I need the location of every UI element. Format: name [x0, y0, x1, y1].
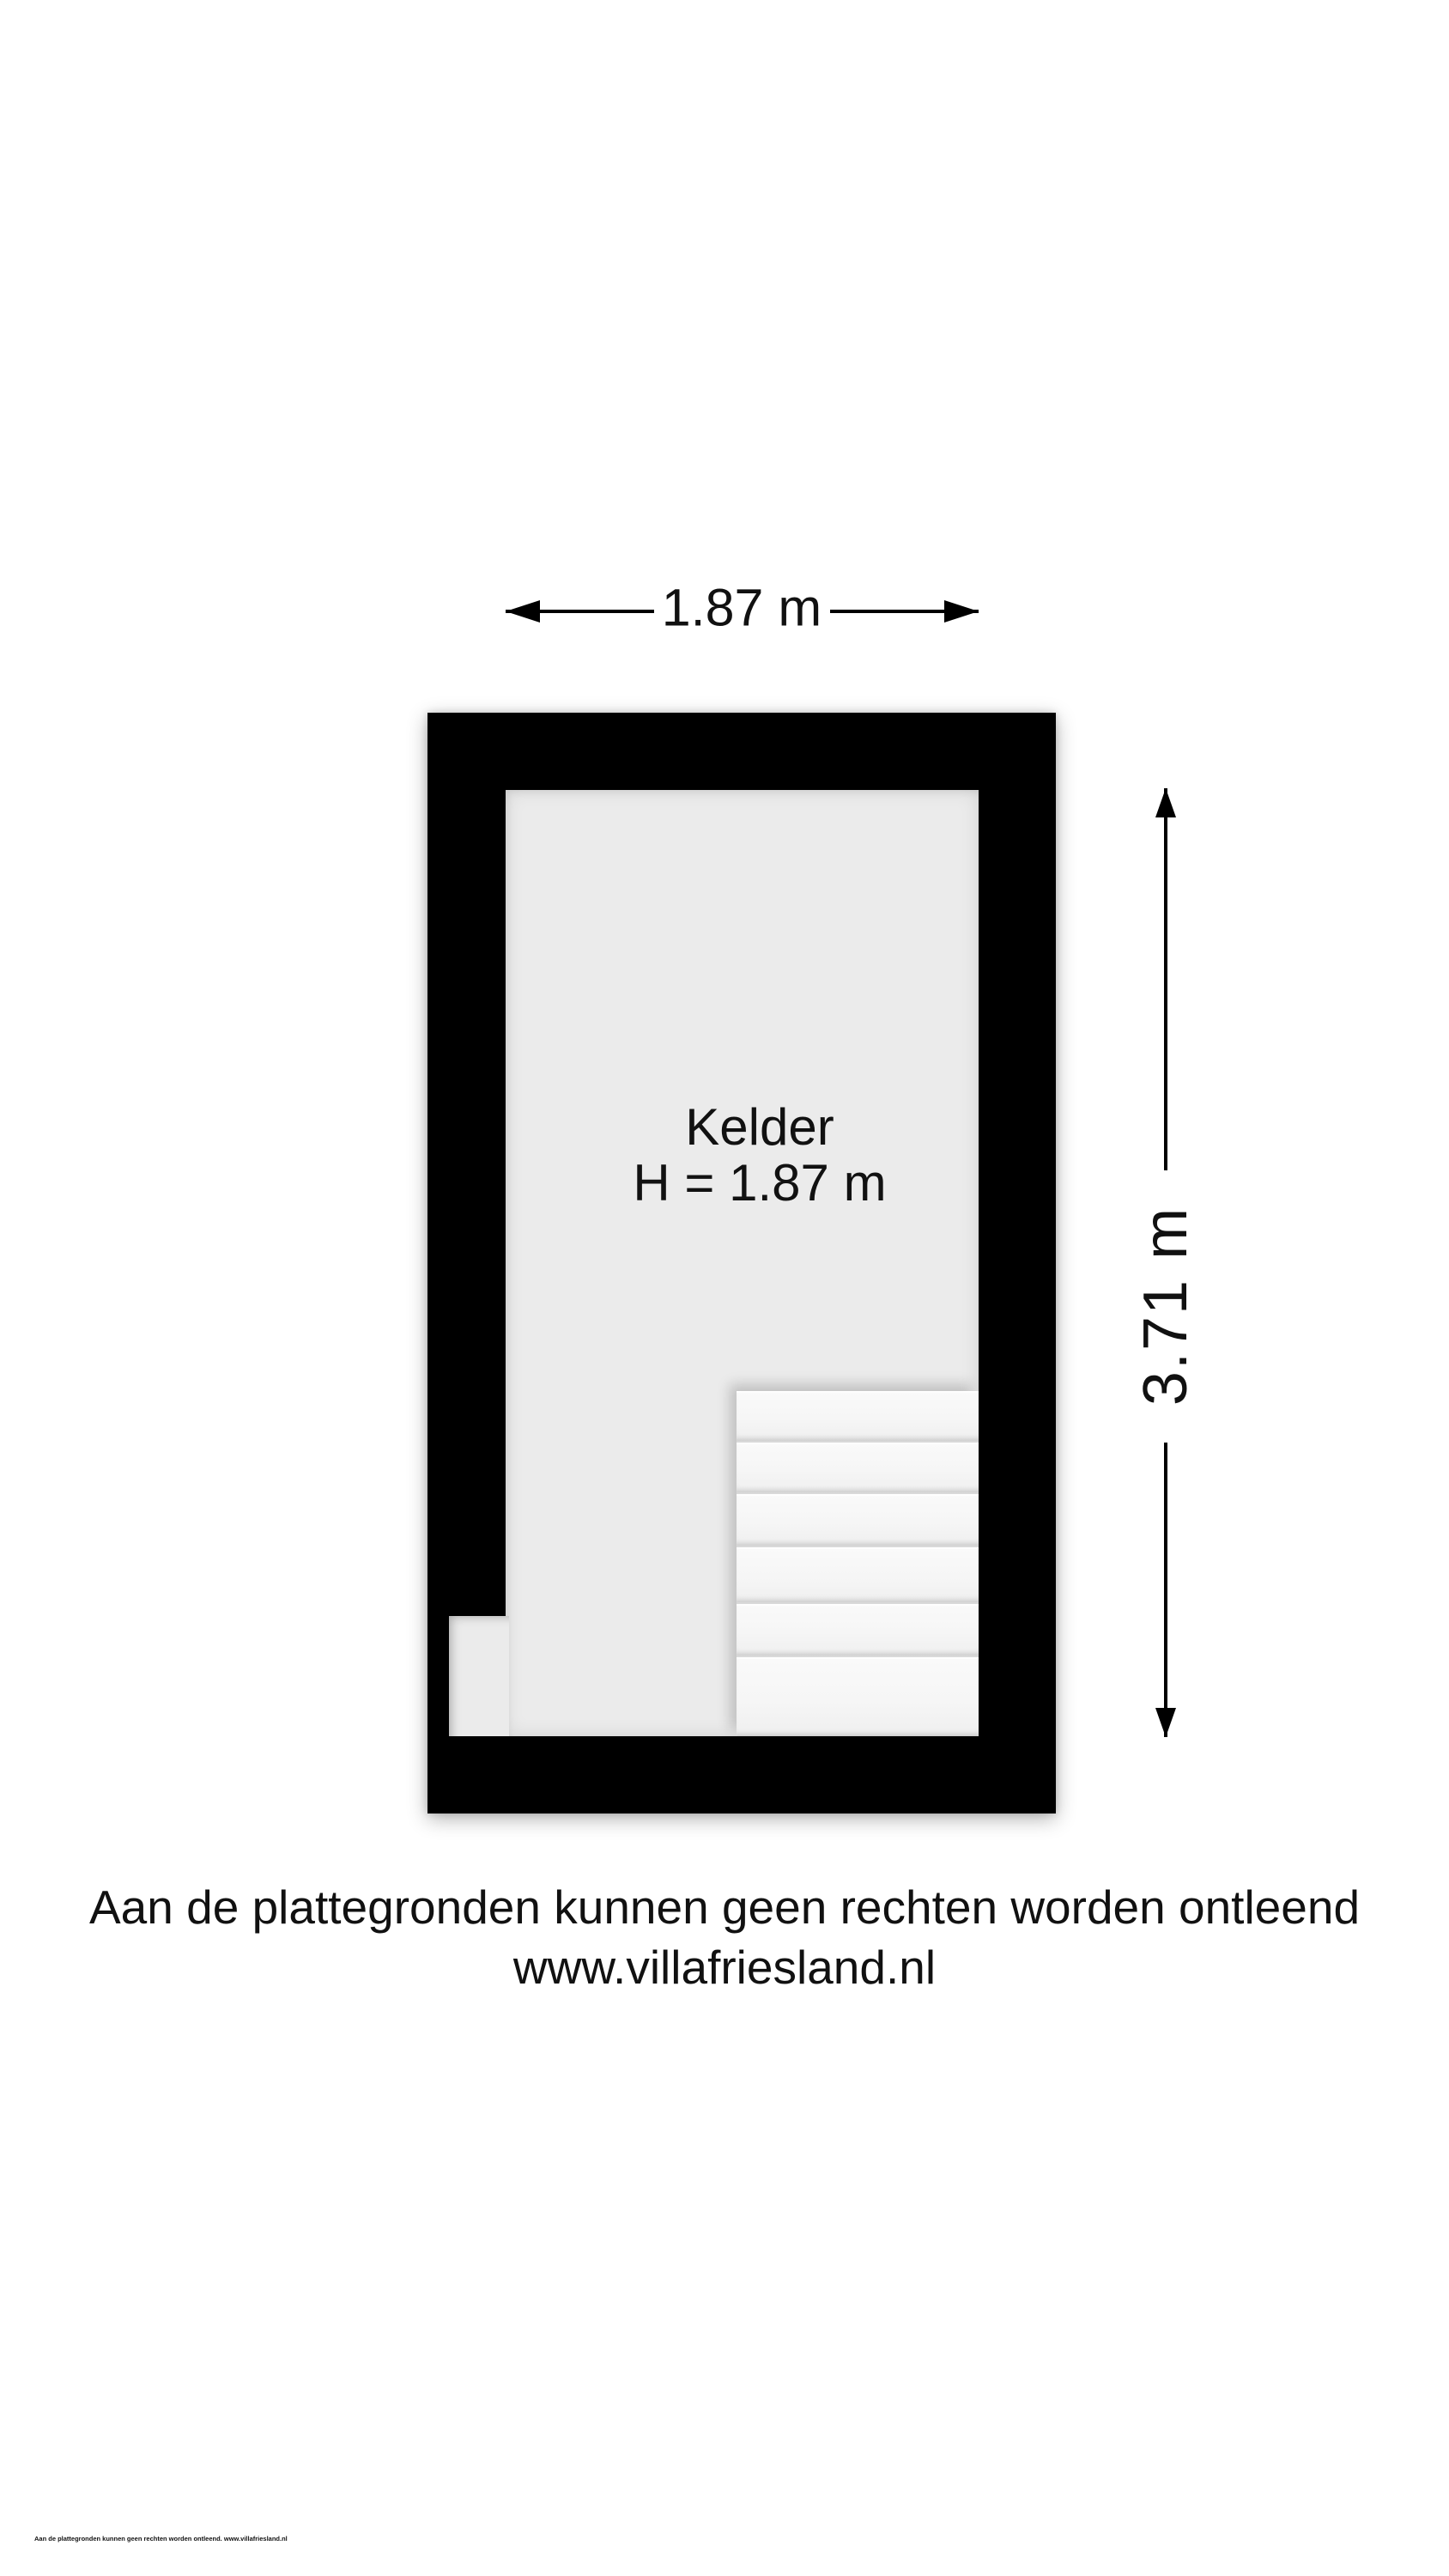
width-dimension-label: 1.87 m — [662, 582, 822, 635]
room-label: Kelder H = 1.87 m — [633, 1099, 886, 1211]
disclaimer-line: Aan de plattegronden kunnen geen rechten… — [0, 1877, 1449, 1937]
dimension-line — [1164, 788, 1167, 1170]
arrow-right-icon — [944, 600, 979, 623]
room-name: Kelder — [633, 1099, 886, 1155]
disclaimer: Aan de plattegronden kunnen geen rechten… — [0, 1877, 1449, 1997]
height-dimension-label: 3.71 m — [1135, 1206, 1197, 1406]
stair-tread — [737, 1547, 979, 1604]
stair-tread — [737, 1391, 979, 1443]
arrow-down-icon — [1155, 1708, 1176, 1737]
dimension-line — [506, 610, 654, 613]
room-floor-notch — [449, 1616, 509, 1736]
stair-tread — [737, 1657, 979, 1736]
website-text: www.villafriesland.nl — [0, 1937, 1449, 1997]
stair-tread — [737, 1604, 979, 1657]
fineprint: Aan de plattegronden kunnen geen rechten… — [34, 2535, 288, 2543]
room-height: H = 1.87 m — [633, 1155, 886, 1211]
floorplan-page: 1.87 m Kelder H = 1.87 m 3.71 m Aan de p… — [0, 0, 1449, 2576]
staircase — [737, 1391, 979, 1736]
stair-tread — [737, 1443, 979, 1494]
dimension-line — [1164, 1443, 1167, 1737]
stair-tread — [737, 1494, 979, 1547]
